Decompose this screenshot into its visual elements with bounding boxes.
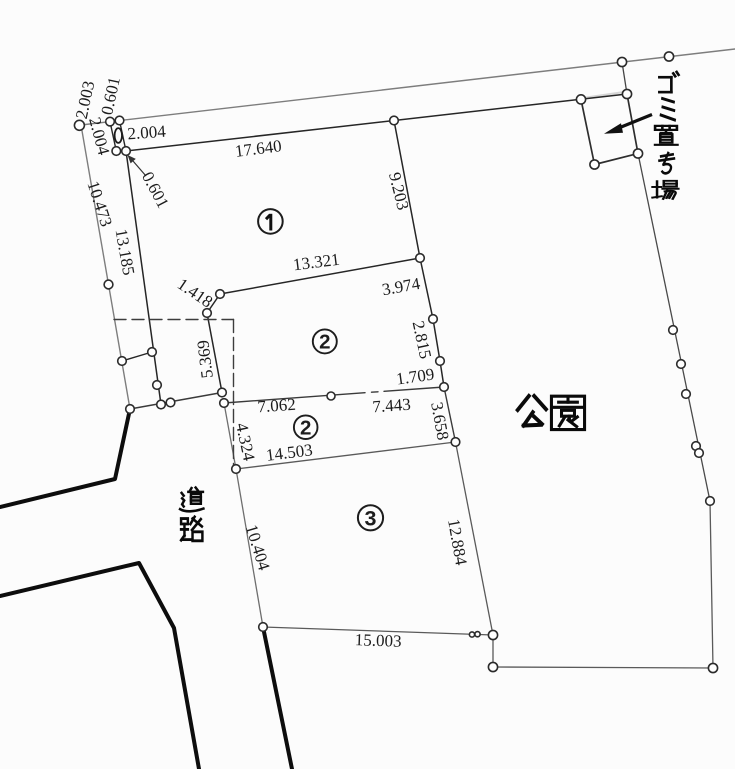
svg-text:3: 3 <box>365 507 377 531</box>
svg-text:15.003: 15.003 <box>354 630 401 651</box>
svg-text:2.004: 2.004 <box>127 122 167 144</box>
svg-text:7.443: 7.443 <box>372 395 411 417</box>
svg-text:2: 2 <box>319 331 330 354</box>
svg-text:7.062: 7.062 <box>257 395 296 417</box>
svg-text:2: 2 <box>300 417 311 440</box>
